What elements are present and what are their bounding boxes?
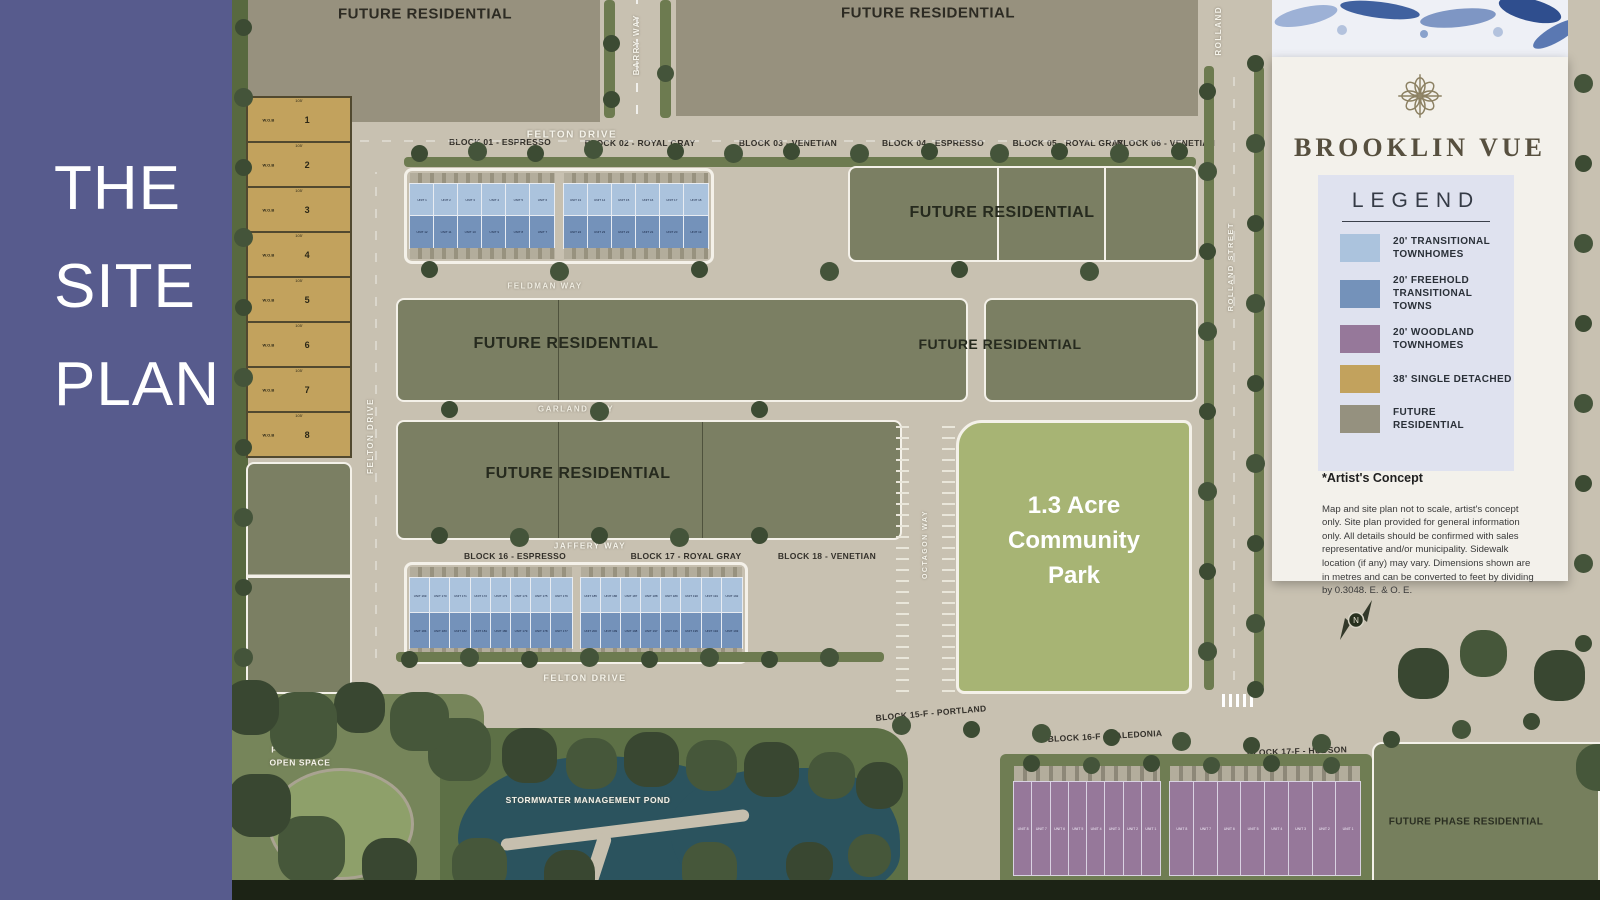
unit-cell: UNIT 4 [1265, 782, 1289, 875]
brand-name: BROOKLIN VUE [1272, 133, 1568, 163]
park-label: 1.3 Acre Community Park [1008, 489, 1140, 593]
unit-cell: UNIT 194 [702, 613, 722, 648]
pond-label: STORMWATER MANAGEMENT POND [506, 795, 671, 805]
townhome-strip-top: UNIT 1UNIT 2UNIT 3UNIT 4UNIT 5UNIT 6UNIT… [404, 168, 714, 264]
block-label-18: BLOCK 18 - VENETIAN [778, 551, 876, 561]
legend-swatch-single-detached [1340, 365, 1380, 393]
unit-cell: UNIT 6 [530, 184, 554, 216]
grass-verge [604, 0, 615, 118]
unit-cell: UNIT 14 [588, 184, 612, 216]
unit-cell: UNIT 17 [660, 184, 684, 216]
grass-verge [1204, 66, 1214, 690]
unit-cell: UNIT 3 [458, 184, 482, 216]
unit-cell: UNIT 183 [430, 613, 450, 648]
unit-cell: UNIT 1 [1336, 782, 1360, 875]
unit-cell: UNIT 7 [1032, 782, 1050, 875]
block-label-16f: BLOCK 16-F - CALEDONIA [1047, 728, 1162, 744]
title-line: SITE [54, 256, 220, 318]
unit-cell: UNIT 16 [636, 184, 660, 216]
legend-label: 20' WOODLAND TOWNHOMES [1393, 326, 1474, 352]
unit-cell: UNIT 18 [684, 184, 708, 216]
road-centerline [1233, 70, 1235, 680]
street-label-jaffery: JAFFERY WAY [554, 542, 626, 551]
unit-cell: UNIT 20 [660, 216, 684, 248]
unit-cell: UNIT 11 [434, 216, 458, 248]
lot-4: 105'W.O.B4 [247, 232, 351, 277]
brand-logo-icon [1388, 67, 1452, 125]
unit-cell: UNIT 9 [482, 216, 506, 248]
legend-item-transitional: 20' TRANSITIONAL TOWNHOMES [1340, 234, 1514, 262]
unit-cell: UNIT 197 [641, 613, 661, 648]
unit-cell: UNIT 174 [511, 578, 531, 613]
unit-cell: UNIT 15 [612, 184, 636, 216]
unit-cell: UNIT 6 [1051, 782, 1069, 875]
unit-cell: UNIT 1 [410, 184, 434, 216]
future-phase-area [1372, 742, 1600, 884]
legend-label: 20' FREEHOLD TRANSITIONAL TOWNS [1393, 274, 1514, 313]
unit-cell: UNIT 181 [471, 613, 491, 648]
unit-cell: UNIT 200 [581, 613, 601, 648]
street-label-felton-left: FELTON DRIVE [366, 398, 375, 474]
unit-cell: UNIT 177 [551, 613, 571, 648]
lot-1: 105'W.O.B1 [247, 97, 351, 142]
lot-3: 105'W.O.B3 [247, 187, 351, 232]
unit-cell: UNIT 23 [588, 216, 612, 248]
legend-label: 20' TRANSITIONAL TOWNHOMES [1393, 235, 1490, 261]
future-residential-label: FUTURE RESIDENTIAL [486, 465, 671, 483]
olive-block-left [246, 462, 352, 694]
lot-5: 105'W.O.B5 [247, 277, 351, 322]
future-residential-label: FUTURE RESIDENTIAL [474, 335, 659, 353]
unit-cell: UNIT 19 [684, 216, 708, 248]
crosswalk [1222, 694, 1254, 707]
unit-cell: UNIT 175 [531, 578, 551, 613]
title-line: THE [54, 158, 220, 220]
unit-cell: UNIT 8 [1170, 782, 1194, 875]
future-residential-label: FUTURE RESIDENTIAL [338, 6, 512, 23]
street-label-octagon: OCTAGON WAY [922, 510, 929, 579]
future-residential-label: FUTURE RESIDENTIAL [919, 336, 1082, 352]
unit-cell: UNIT 190 [681, 578, 701, 613]
info-panel: BROOKLIN VUE LEGEND 20' TRANSITIONAL TOW… [1272, 57, 1568, 581]
unit-cell: UNIT 5 [1069, 782, 1087, 875]
street-label-feldman: FELDMAN WAY [507, 282, 582, 291]
unit-cell: UNIT 170 [430, 578, 450, 613]
unit-cell: UNIT 179 [511, 613, 531, 648]
grass-verge [660, 0, 671, 118]
unit-cell: UNIT 3 [1289, 782, 1313, 875]
unit-cell: UNIT 189 [661, 578, 681, 613]
compass-icon: N [1332, 596, 1380, 644]
unit-cell: UNIT 3 [1105, 782, 1123, 875]
street-label-rolland-top: ROLLAND [1214, 6, 1223, 56]
unit-cell: UNIT 13 [564, 184, 588, 216]
road-centerline [360, 140, 1196, 142]
woodland-strip-left: UNIT 8UNIT 7UNIT 6UNIT 5UNIT 4UNIT 3UNIT… [1014, 766, 1160, 888]
block-label-16: BLOCK 16 - ESPRESSO [464, 551, 566, 561]
unit-cell: UNIT 21 [636, 216, 660, 248]
svg-text:N: N [1353, 616, 1359, 625]
lot-8: 105'W.O.B8 [247, 412, 351, 457]
unit-cell: UNIT 193 [722, 613, 742, 648]
street-label-rolland: ROLLAND STREET [1226, 222, 1235, 311]
title-line: PLAN [54, 354, 220, 416]
lot-2: 105'W.O.B2 [247, 142, 351, 187]
unit-cell: UNIT 192 [722, 578, 742, 613]
unit-cell: UNIT 172 [471, 578, 491, 613]
unit-cell: UNIT 198 [621, 613, 641, 648]
future-residential-label: FUTURE RESIDENTIAL [910, 204, 1095, 222]
legend-item-freehold: 20' FREEHOLD TRANSITIONAL TOWNS [1340, 274, 1514, 313]
unit-cell: UNIT 178 [531, 613, 551, 648]
parking-stalls [896, 424, 909, 692]
legend-item-future-residential: FUTURE RESIDENTIAL [1340, 405, 1514, 433]
road-centerline [375, 172, 377, 658]
unit-cell: UNIT 22 [612, 216, 636, 248]
street-label-barry-way: BARRY WAY [632, 14, 641, 75]
unit-cell: UNIT 199 [601, 613, 621, 648]
street-label-garland: GARLAND WAY [538, 405, 614, 414]
unit-cell: UNIT 2 [1124, 782, 1142, 875]
legend-divider [1342, 221, 1490, 222]
artists-concept-heading: *Artist's Concept [1322, 471, 1423, 485]
unit-cell: UNIT 24 [564, 216, 588, 248]
floral-leaves-icon [1272, 0, 1568, 57]
legend-swatch-transitional [1340, 234, 1380, 262]
community-park: 1.3 Acre Community Park [956, 420, 1192, 694]
unit-cell: UNIT 7 [1194, 782, 1218, 875]
unit-cell: UNIT 176 [551, 578, 571, 613]
unit-cell: UNIT 180 [491, 613, 511, 648]
future-phase-label: FUTURE PHASE RESIDENTIAL [1389, 817, 1543, 828]
future-residential-label: FUTURE RESIDENTIAL [841, 5, 1015, 22]
unit-cell: UNIT 196 [661, 613, 681, 648]
unit-cell: UNIT 2 [434, 184, 458, 216]
legend-swatch-woodland [1340, 325, 1380, 353]
legend-title: LEGEND [1318, 189, 1514, 213]
grass-verge [1254, 66, 1264, 690]
unit-cell: UNIT 186 [601, 578, 621, 613]
townhome-strip-bottom: UNIT 169UNIT 170UNIT 171UNIT 172UNIT 173… [404, 562, 748, 664]
unit-cell: UNIT 1 [1142, 782, 1160, 875]
unit-cell: UNIT 6 [1218, 782, 1242, 875]
unit-cell: UNIT 2 [1313, 782, 1337, 875]
street-label-felton-bottom: FELTON DRIVE [543, 673, 626, 683]
parking-stalls [942, 424, 955, 692]
unit-cell: UNIT 4 [1087, 782, 1105, 875]
lot-6: 105'W.O.B6 [247, 322, 351, 367]
unit-cell: UNIT 191 [702, 578, 722, 613]
unit-cell: UNIT 169 [410, 578, 430, 613]
unit-cell: UNIT 173 [491, 578, 511, 613]
site-plan-slide: FUTURE RESIDENTIAL FUTURE RESIDENTIAL BA… [0, 0, 1600, 900]
open-space-label: PUBLIC USE OPEN SPACE [269, 743, 330, 769]
block-label-17: BLOCK 17 - ROYAL GRAY [631, 551, 742, 561]
lot-7: 105'W.O.B7 [247, 367, 351, 412]
block-label-15f: BLOCK 15-F - PORTLAND [875, 703, 987, 723]
unit-cell: UNIT 8 [506, 216, 530, 248]
woodland-strip-right: UNIT 8UNIT 7UNIT 6UNIT 5UNIT 4UNIT 3UNIT… [1170, 766, 1360, 888]
unit-cell: UNIT 10 [458, 216, 482, 248]
unit-cell: UNIT 5 [506, 184, 530, 216]
bottom-tree-band [232, 880, 1600, 900]
legend-swatch-freehold [1340, 280, 1380, 308]
grass-verge [396, 652, 884, 662]
legend-item-woodland: 20' WOODLAND TOWNHOMES [1340, 325, 1514, 353]
floral-decoration [1272, 0, 1568, 57]
disclaimer-text: Map and site plan not to scale, artist's… [1322, 503, 1540, 598]
single-detached-lots: 105'W.O.B1 105'W.O.B2 105'W.O.B3 105'W.O… [246, 96, 352, 458]
unit-cell: UNIT 4 [482, 184, 506, 216]
unit-cell: UNIT 8 [1014, 782, 1032, 875]
legend-item-single-detached: 38' SINGLE DETACHED [1340, 365, 1514, 393]
unit-cell: UNIT 182 [450, 613, 470, 648]
unit-cell: UNIT 184 [410, 613, 430, 648]
unit-cell: UNIT 7 [530, 216, 554, 248]
unit-cell: UNIT 187 [621, 578, 641, 613]
unit-cell: UNIT 188 [641, 578, 661, 613]
open-space-meadow [268, 768, 414, 880]
legend-swatch-future-residential [1340, 405, 1380, 433]
legend-label: 38' SINGLE DETACHED [1393, 373, 1512, 386]
unit-cell: UNIT 195 [681, 613, 701, 648]
stormwater-pond [440, 728, 908, 900]
legend: LEGEND 20' TRANSITIONAL TOWNHOMES 20' FR… [1318, 175, 1514, 471]
title-sidebar: THE SITE PLAN [0, 0, 232, 900]
unit-cell: UNIT 12 [410, 216, 434, 248]
unit-cell: UNIT 185 [581, 578, 601, 613]
block-label-01: BLOCK 01 - ESPRESSO [449, 137, 551, 147]
legend-label: FUTURE RESIDENTIAL [1393, 406, 1464, 432]
unit-cell: UNIT 171 [450, 578, 470, 613]
unit-cell: UNIT 5 [1241, 782, 1265, 875]
